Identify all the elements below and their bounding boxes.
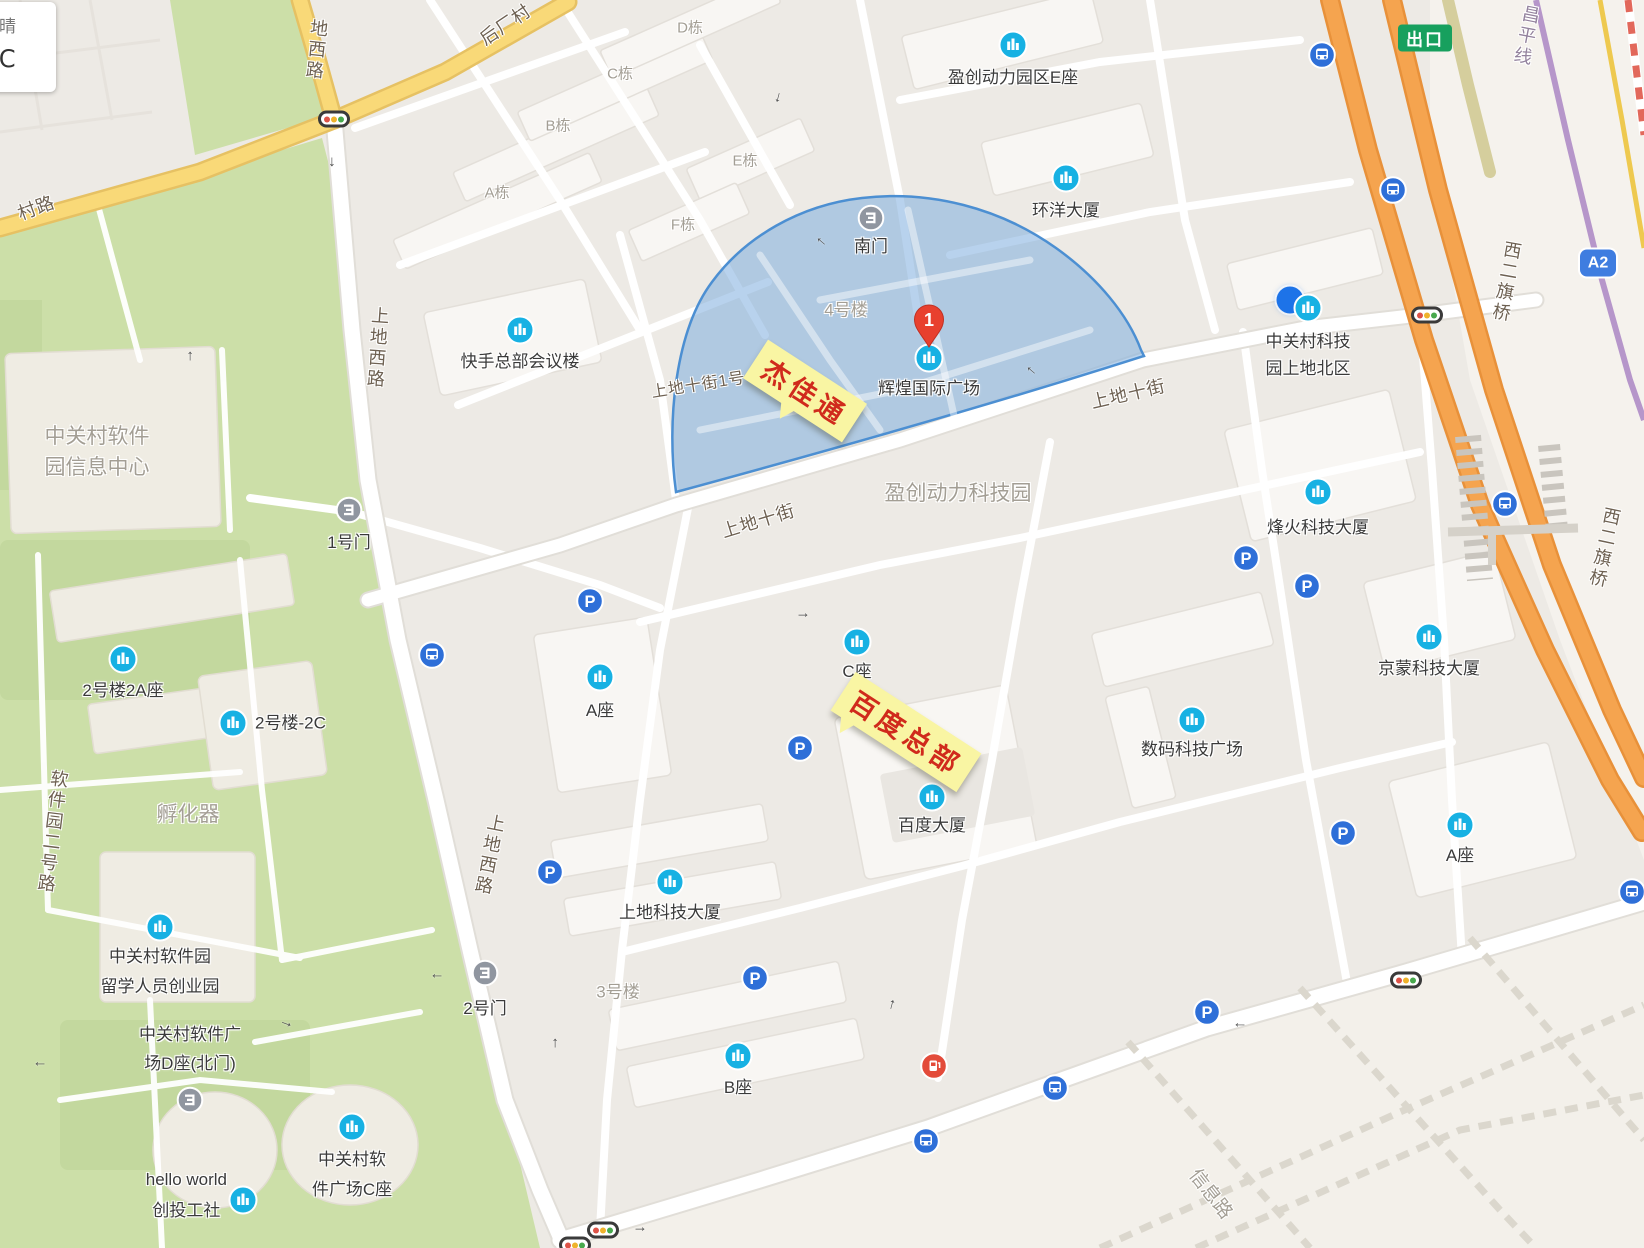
building-label[interactable]: 上地科技大厦 — [619, 899, 721, 926]
building-label[interactable]: 中关村科技园上地北区 — [1266, 328, 1351, 382]
oneway-arrow-icon: → — [1233, 1019, 1248, 1036]
area-label: 中关村软件园信息中心 — [45, 421, 150, 483]
weather-temperature: 36℃ — [0, 45, 16, 74]
building-label[interactable]: 中关村软件园留学人员创业园 — [101, 942, 220, 1002]
oneway-arrow-icon: → — [770, 89, 790, 108]
building-label[interactable]: B座 — [724, 1074, 752, 1101]
annotation-callout: 百度总部 — [831, 672, 982, 792]
svg-text:P: P — [544, 864, 555, 882]
oneway-arrow-icon: → — [33, 1058, 48, 1075]
oneway-arrow-icon: → — [880, 995, 900, 1014]
svg-text:P: P — [794, 740, 805, 758]
building-label[interactable]: A座 — [1446, 842, 1474, 869]
svg-text:P: P — [584, 593, 595, 611]
building-label[interactable]: 辉煌国际广场 — [878, 375, 980, 402]
oneway-arrow-icon: → — [796, 605, 811, 622]
road-label: 后厂村 — [474, 0, 536, 51]
subway-exit-badge: 出口 — [1398, 25, 1452, 52]
area-label: C栋 — [607, 63, 633, 84]
weather-condition: 晴 — [0, 12, 16, 37]
area-label: 盈创动力科技园 — [885, 477, 1032, 507]
area-label: 孵化器 — [157, 798, 220, 828]
gate-label[interactable]: 1号门 — [327, 529, 370, 556]
svg-text:P: P — [1240, 550, 1251, 568]
gate-label[interactable]: 2号门 — [463, 995, 506, 1022]
gate-label[interactable]: 中关村软件广场D座(北门) — [139, 1020, 241, 1078]
callout-text: 百度总部 — [844, 687, 968, 782]
area-label: B栋 — [545, 115, 570, 136]
traffic-light-icon — [559, 1237, 591, 1248]
callout-text: 杰佳通 — [756, 354, 853, 431]
building-label[interactable]: 中关村软件广场C座 — [312, 1145, 392, 1205]
area-label: 信息路 — [1184, 1162, 1240, 1224]
oneway-arrow-icon: → — [545, 1036, 562, 1051]
oneway-arrow-icon: → — [180, 349, 197, 364]
road-label: 上地十街 — [1088, 372, 1168, 414]
building-label[interactable]: A座 — [586, 697, 614, 724]
road-label: 上地十街1号 — [649, 364, 746, 403]
oneway-arrow-icon: → — [809, 232, 831, 255]
callout-tail — [773, 402, 795, 423]
building-label[interactable]: 环洋大厦 — [1032, 197, 1100, 224]
oneway-arrow-icon: → — [277, 1011, 297, 1032]
svg-text:P: P — [749, 970, 760, 988]
area-label: 4号楼 — [824, 296, 867, 321]
traffic-light-icon — [587, 1222, 619, 1239]
area-label: 3号楼 — [596, 978, 639, 1003]
building-label[interactable]: 2号楼2A座 — [82, 677, 163, 704]
svg-text:P: P — [1201, 1004, 1212, 1022]
oneway-arrow-icon: → — [326, 155, 343, 170]
callout-tail — [833, 716, 855, 737]
selected-result-marker[interactable]: 1 — [911, 303, 947, 354]
road-label: 上地西路 — [361, 305, 393, 391]
traffic-light-icon — [1411, 307, 1443, 324]
map-canvas[interactable]: →→→→→→→→→→→→→中关村软件园信息中心孵化器盈创动力科技园3号楼4号楼信… — [0, 0, 1644, 1248]
building-label[interactable]: 2号楼-2C — [255, 710, 326, 737]
area-label: D栋 — [677, 17, 703, 38]
gate-label[interactable]: 南门 — [854, 233, 888, 260]
svg-text:1: 1 — [924, 310, 934, 330]
building-label[interactable]: 烽火科技大厦 — [1267, 514, 1369, 541]
building-label[interactable]: 盈创动力园区E座 — [948, 64, 1078, 91]
svg-text:P: P — [1337, 825, 1348, 843]
area-label: E栋 — [732, 150, 757, 171]
traffic-light-icon — [318, 111, 350, 128]
road-label: 软件园二号路 — [31, 768, 72, 896]
area-label: A栋 — [484, 182, 509, 203]
highway-exit-badge: A2 — [1580, 250, 1616, 277]
overlay-layer: →→→→→→→→→→→→→中关村软件园信息中心孵化器盈创动力科技园3号楼4号楼信… — [0, 0, 1644, 1248]
svg-text:P: P — [1301, 578, 1312, 596]
road-label: 昌平线 — [1507, 3, 1545, 70]
road-label: 西二旗桥 — [1486, 238, 1526, 325]
oneway-arrow-icon: → — [430, 970, 445, 987]
area-label: F栋 — [671, 214, 695, 235]
road-label: 地西路 — [300, 17, 332, 82]
annotation-callout: 杰佳通 — [743, 340, 867, 443]
traffic-light-icon — [1390, 972, 1422, 989]
oneway-arrow-icon: → — [1019, 361, 1041, 384]
oneway-arrow-icon: → — [633, 1219, 648, 1236]
building-label[interactable]: hello world创投工社 — [146, 1164, 227, 1226]
road-label: 西二旗桥 — [1583, 504, 1626, 592]
road-label: 上地十街 — [718, 496, 798, 543]
road-label: 上地西路 — [468, 811, 510, 898]
weather-widget[interactable]: 晴 36℃ — [0, 2, 56, 92]
building-label[interactable]: 京蒙科技大厦 — [1378, 655, 1480, 682]
building-label[interactable]: 快手总部会议楼 — [461, 348, 580, 375]
building-label[interactable]: 数码科技广场 — [1141, 736, 1243, 763]
building-label[interactable]: 百度大厦 — [898, 812, 966, 839]
road-label: 村路 — [14, 188, 59, 225]
